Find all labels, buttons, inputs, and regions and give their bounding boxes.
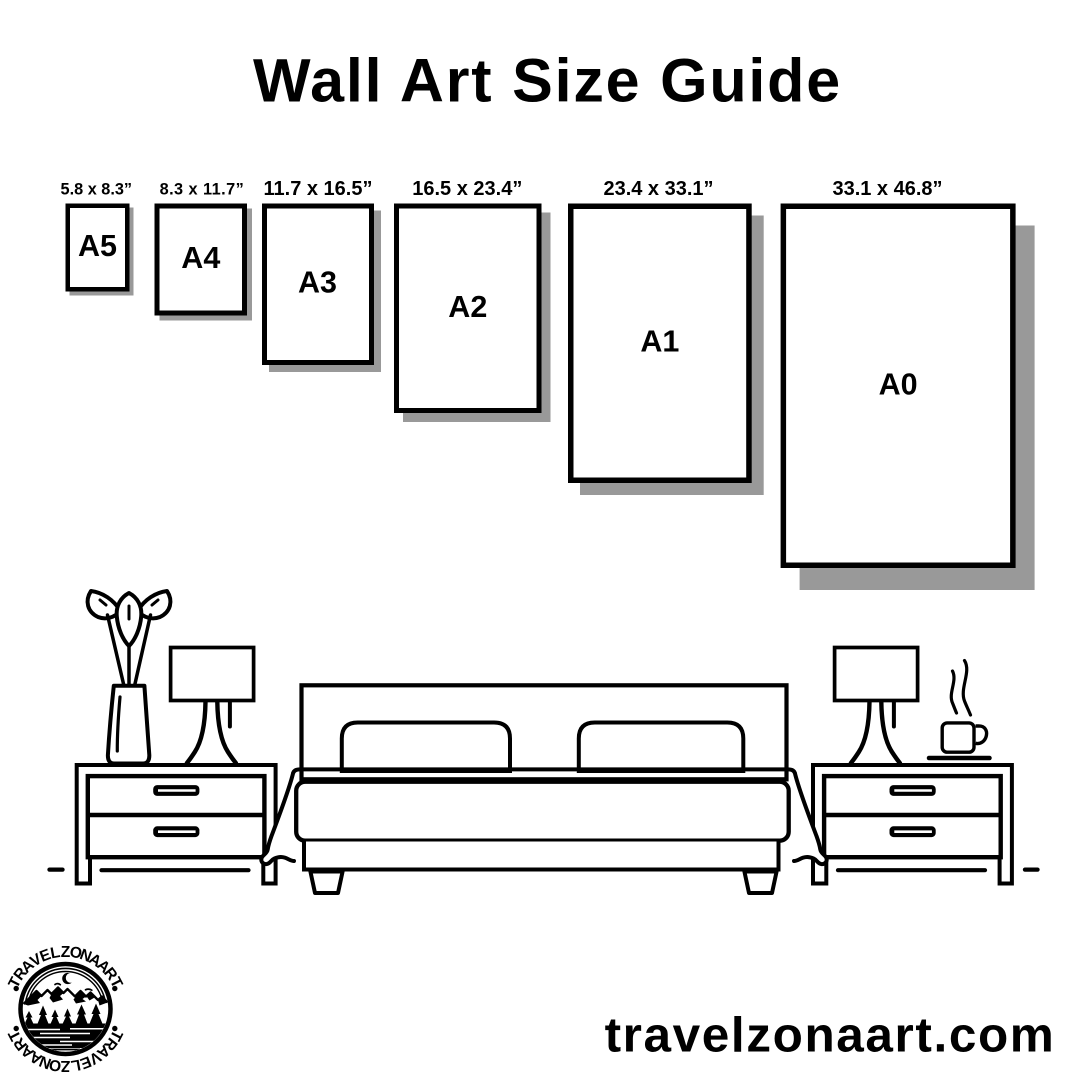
svg-text:A4: A4 xyxy=(181,241,220,275)
svg-text:Wall Art Size Guide: Wall Art Size Guide xyxy=(253,47,842,115)
svg-text:A0: A0 xyxy=(879,367,918,401)
svg-text:33.1 x 46.8”: 33.1 x 46.8” xyxy=(832,178,942,200)
svg-text:5.8 x 8.3”: 5.8 x 8.3” xyxy=(61,181,133,199)
svg-text:A5: A5 xyxy=(78,229,117,263)
svg-text:8.3 x 11.7”: 8.3 x 11.7” xyxy=(160,181,245,199)
svg-text:A1: A1 xyxy=(640,325,679,359)
svg-text:11.7 x 16.5”: 11.7 x 16.5” xyxy=(264,178,373,200)
svg-text:23.4 x 33.1”: 23.4 x 33.1” xyxy=(603,178,713,200)
svg-text:A2: A2 xyxy=(448,290,487,324)
svg-text:A3: A3 xyxy=(298,265,337,299)
svg-text:travelzonaart.com: travelzonaart.com xyxy=(605,1008,1056,1063)
svg-text:16.5 x 23.4”: 16.5 x 23.4” xyxy=(412,178,522,200)
